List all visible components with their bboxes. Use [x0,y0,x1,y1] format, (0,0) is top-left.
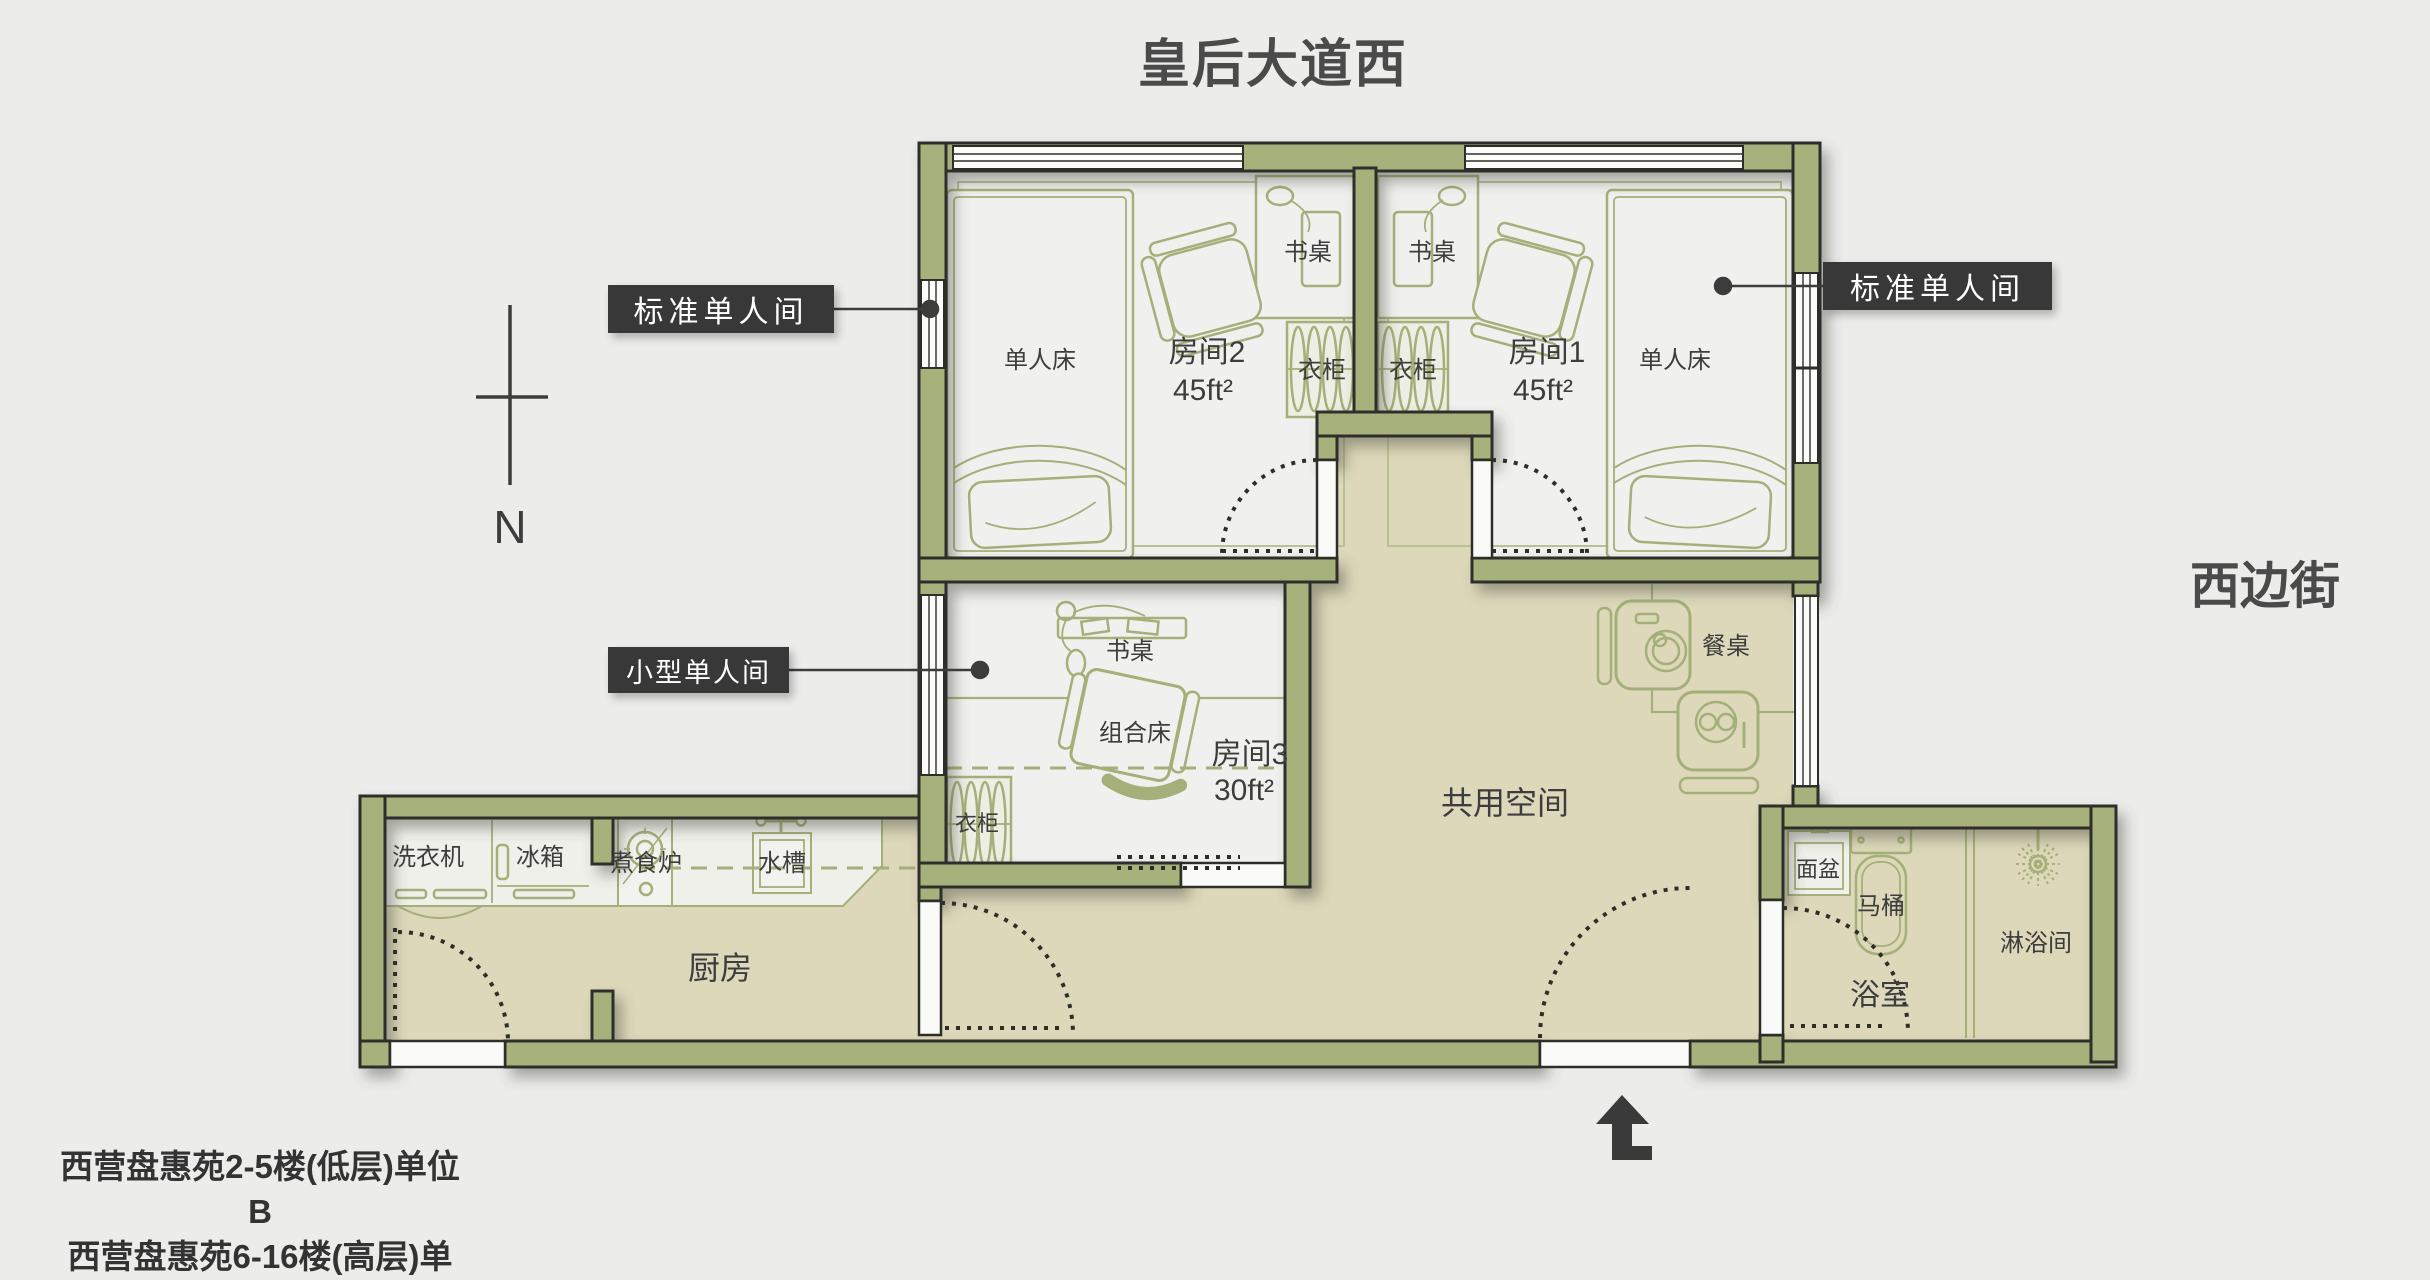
label-stove: 煮食炉 [610,850,682,877]
bed-room1 [1607,190,1793,558]
label-sink: 水槽 [758,850,806,877]
wall-bathroom-right [2091,806,2116,1062]
label-bed-room1: 单人床 [1639,347,1711,374]
street-right-label: 西边街 [2150,546,2380,618]
callout-standard-single-right: 标准单人间 [1823,262,2052,310]
wall-bottom-a [360,1041,390,1067]
label-bed-room2: 单人床 [1004,347,1076,374]
north-label: N [470,500,550,554]
wall-room1-bottom [1472,558,1820,582]
floor-passage [919,887,1310,1066]
wall-room2-bottom [919,558,1337,582]
door-opening-main-entrance [1540,1041,1690,1067]
entrance-arrow-icon [1596,1095,1652,1160]
label-room2-name: 房间2 [1169,336,1246,369]
leader-dot-right [1715,278,1731,294]
bed-room2 [947,190,1133,558]
door-leaf-room2 [1317,460,1337,558]
label-room2-area: 45ft² [1173,374,1233,407]
caption-line2: 西营盘惠苑6-16楼(高层)单位B [55,1234,465,1280]
door-opening-bathroom [1760,900,1783,1035]
label-toilet: 马桶 [1857,893,1905,920]
wall-right-window-cap-top [1793,582,1818,596]
window-top-room2 [953,146,1243,169]
label-room3-name: 房间3 [1212,738,1289,771]
window-right-common [1795,596,1818,786]
label-room1-area: 45ft² [1513,374,1573,407]
north-symbol [476,305,548,485]
dining-chair-top [1598,601,1690,689]
label-room1-name: 房间1 [1509,336,1586,369]
wall-under-wardrobes [1317,412,1492,436]
wall-kitchen-stub-bottom [592,991,613,1043]
label-room3-area: 30ft² [1214,774,1274,807]
door-opening-kitchen-entrance [390,1041,505,1067]
wall-bathroom-left-a [1760,806,1783,900]
label-desk-room1: 书桌 [1408,239,1456,266]
street-top-title: 皇后大道西 [1023,22,1523,97]
label-dining-table: 餐桌 [1702,633,1750,660]
wall-room3-right [1285,582,1310,887]
label-kitchen: 厨房 [688,950,752,986]
wall-kitchen-left [360,796,385,1066]
label-wardrobe-room2: 衣柜 [1298,357,1346,384]
wall-post-right [1472,436,1492,460]
callout-small-single: 小型单人间 [608,647,789,693]
label-wardrobe-room3: 衣柜 [955,811,999,836]
leader-dot-small [972,662,988,678]
wall-bathroom-top [1760,806,2116,828]
wall-bottom-b [505,1041,1540,1067]
window-top-room1 [1465,146,1743,169]
label-shower: 淋浴间 [2000,930,2072,957]
floor-plan-page: 单人床 单人床 书桌 书桌 衣柜 衣柜 房间2 45ft² 房间1 45ft² … [0,0,2430,1280]
wall-room-divider [1354,168,1376,436]
callout-standard-single-left: 标准单人间 [608,285,834,333]
floor-corridor [1337,430,1472,590]
wall-kitchen-door-post [919,887,941,901]
wall-bottom-c [1690,1041,2116,1067]
label-common-space: 共用空间 [1441,785,1569,821]
dining-chair-bottom [1678,692,1758,793]
label-wardrobe-room1: 衣柜 [1389,357,1437,384]
window-left-room2 [921,280,944,368]
label-desk-room3: 书桌 [1106,638,1154,665]
building-captions: 西营盘惠苑2-5楼(低层)单位B 西营盘惠苑6-16楼(高层)单位B [55,1144,465,1280]
label-desk-room2: 书桌 [1284,239,1332,266]
window-left-room3 [921,595,944,775]
label-basin: 面盆 [1796,857,1840,882]
label-fridge: 冰箱 [516,844,564,871]
wall-post-left [1317,436,1337,460]
wall-kitchen-top [360,796,919,818]
wall-bathroom-left-b [1760,1035,1783,1062]
leader-dot-left [922,301,938,317]
label-combo-bed: 组合床 [1099,720,1171,747]
floor-plan-drawing: 单人床 单人床 书桌 书桌 衣柜 衣柜 房间2 45ft² 房间1 45ft² … [0,0,2430,1280]
label-washing-machine: 洗衣机 [392,844,464,871]
caption-line1: 西营盘惠苑2-5楼(低层)单位B [55,1144,465,1234]
door-opening-kitchen-common [919,901,941,1035]
wall-right-window-cap-bottom [1793,786,1818,806]
door-leaf-room1 [1472,460,1492,558]
label-bathroom: 浴室 [1850,979,1910,1012]
